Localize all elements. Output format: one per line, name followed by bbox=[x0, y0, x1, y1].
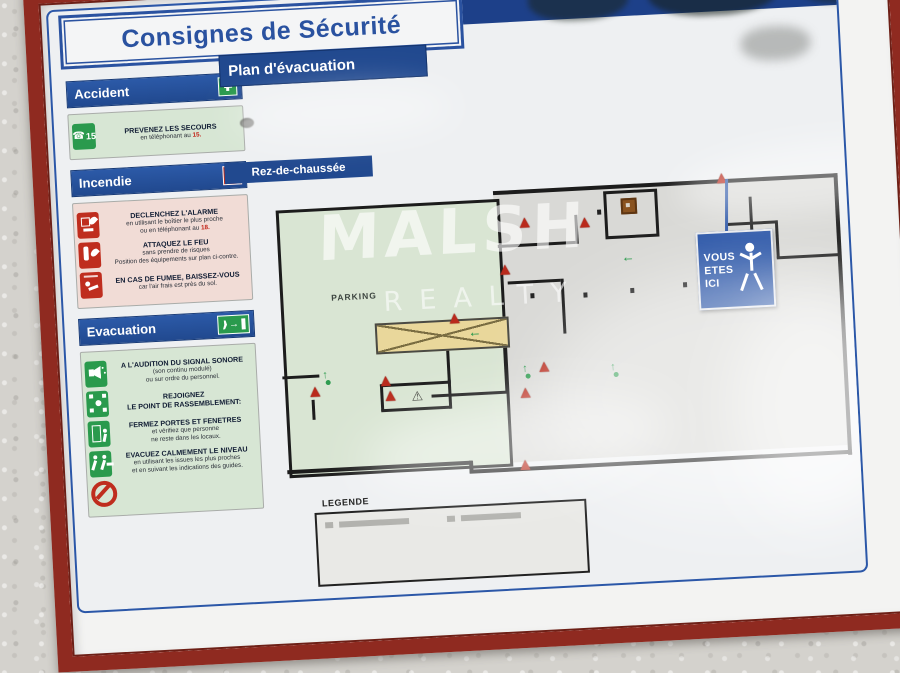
accident-item: ☎15 PREVENEZ LES SECOURS en téléphonant … bbox=[72, 115, 241, 150]
legend-swatch bbox=[325, 522, 333, 528]
safety-sign-frame: Consignes de Sécurité Accident ☎15 PREVE… bbox=[23, 0, 900, 673]
extinguisher-item: ATTAQUEZ LE FEU sans prendre de risques … bbox=[78, 234, 247, 269]
alarm-sound-icon bbox=[84, 361, 107, 388]
column-marker bbox=[683, 282, 687, 287]
emergency-phone-icon: ☎15 bbox=[72, 123, 97, 150]
column-marker bbox=[630, 288, 634, 293]
watermark-brand: MALSH bbox=[318, 188, 590, 275]
legend-entry bbox=[461, 512, 521, 521]
evacuation-direction-arrow: ← bbox=[621, 250, 635, 264]
you-are-here-leader-line bbox=[725, 179, 728, 235]
person-icon bbox=[736, 240, 765, 297]
yah-line1: VOUS bbox=[703, 250, 735, 264]
fire-extinguisher-icon bbox=[500, 264, 511, 275]
assembly-point-icon bbox=[86, 391, 109, 418]
header-band bbox=[407, 0, 836, 27]
hazard-warning-icon: ⚠ bbox=[411, 389, 423, 403]
prohibition-icon bbox=[91, 480, 118, 507]
fire-extinguisher-icon bbox=[539, 361, 550, 372]
you-are-here-badge: VOUS ETES ICI bbox=[695, 229, 776, 311]
fire-extinguisher-icon bbox=[380, 376, 391, 387]
legend-swatch bbox=[447, 516, 455, 522]
evacuation-direction-arrow: ← bbox=[468, 325, 482, 339]
accident-label: Accident bbox=[74, 84, 130, 102]
close-door-icon bbox=[87, 421, 110, 448]
yah-line2: ETES bbox=[704, 264, 736, 278]
safety-poster: Consignes de Sécurité Accident ☎15 PREVE… bbox=[46, 0, 869, 613]
sticker-mark bbox=[240, 118, 255, 129]
glass-glare bbox=[232, 81, 454, 142]
section-evacuation-header: Evacuation → bbox=[78, 310, 255, 346]
fire-extinguisher-icon bbox=[520, 387, 531, 398]
emergency-exit-icon: → bbox=[217, 314, 250, 335]
evacuation-panel: A L'AUDITION DU SIGNAL SONORE (son conti… bbox=[80, 343, 264, 518]
smoke-item: EN CAS DE FUMEE, BAISSEZ-VOUS car l'air … bbox=[80, 264, 249, 299]
column-marker bbox=[597, 210, 601, 215]
fire-extinguisher-icon bbox=[449, 313, 460, 324]
fire-extinguisher-icon bbox=[520, 460, 531, 471]
close-doors-item: FERMEZ PORTES ET FENETRES et vérifiez qu… bbox=[87, 413, 256, 448]
evacuate-item: EVACUEZ CALMEMENT LE NIVEAU en utilisant… bbox=[89, 443, 258, 478]
exit-route-icon: ↑ bbox=[522, 364, 528, 375]
section-incendie-header: Incendie bbox=[70, 161, 247, 197]
crouch-under-smoke-icon bbox=[80, 272, 103, 299]
signal-item: A L'AUDITION DU SIGNAL SONORE (son conti… bbox=[84, 353, 253, 388]
exit-route-icon: ↑ bbox=[610, 362, 616, 373]
parking-label: PARKING bbox=[331, 290, 377, 302]
fire-extinguisher-use-icon bbox=[78, 242, 101, 269]
electrical-panel-icon bbox=[620, 198, 637, 215]
evacuate-runners-icon bbox=[89, 451, 112, 478]
floor-label: Rez-de-chaussée bbox=[251, 161, 345, 178]
tree-reflection bbox=[740, 24, 812, 62]
evacuation-label: Evacuation bbox=[86, 321, 156, 340]
plan-header-label: Plan d'évacuation bbox=[228, 56, 356, 80]
incendie-label: Incendie bbox=[79, 173, 132, 191]
incendie-panel: DECLENCHEZ L'ALARME en utilisant le boît… bbox=[72, 194, 253, 309]
accident-panel: ☎15 PREVENEZ LES SECOURS en téléphonant … bbox=[67, 105, 245, 160]
no-elevator-item bbox=[91, 473, 260, 508]
section-accident-header: Accident bbox=[66, 72, 243, 108]
instructions-column: Accident ☎15 PREVENEZ LES SECOURS en tél… bbox=[66, 72, 265, 528]
floor-label-box: Rez-de-chaussée bbox=[224, 155, 373, 184]
alarm-item: DECLENCHEZ L'ALARME en utilisant le boît… bbox=[76, 204, 245, 239]
legend-box bbox=[314, 499, 590, 587]
yah-line3: ICI bbox=[705, 277, 737, 291]
assembly-item: REJOIGNEZ LE POINT DE RASSEMBLEMENT: bbox=[86, 383, 255, 418]
exit-route-icon: ↑ bbox=[322, 370, 328, 381]
legend-entry bbox=[339, 518, 409, 528]
legend-label: LEGENDE bbox=[322, 496, 369, 508]
fire-alarm-icon bbox=[76, 212, 99, 239]
fire-extinguisher-icon bbox=[310, 386, 321, 397]
fire-extinguisher-icon bbox=[385, 391, 396, 402]
